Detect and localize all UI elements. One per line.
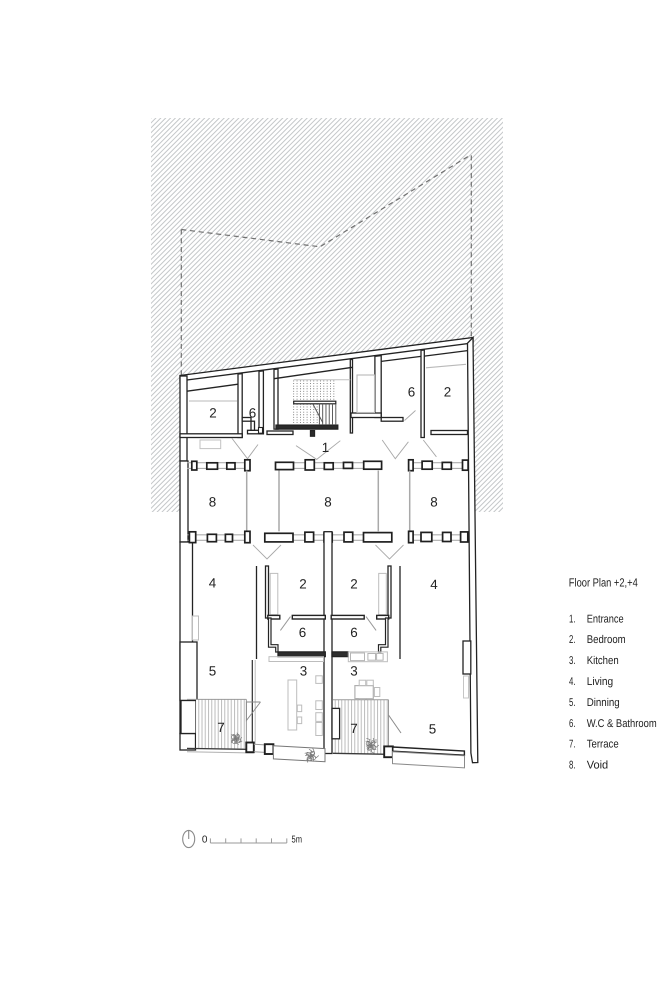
svg-text:2: 2 bbox=[350, 577, 357, 592]
svg-text:3.: 3. bbox=[569, 655, 576, 667]
svg-text:7.: 7. bbox=[569, 739, 576, 751]
svg-text:Bedroom: Bedroom bbox=[587, 634, 626, 646]
svg-text:Floor Plan +2,+4: Floor Plan +2,+4 bbox=[569, 576, 638, 590]
svg-text:5: 5 bbox=[429, 722, 436, 737]
svg-text:Dinning: Dinning bbox=[587, 697, 620, 709]
svg-text:Kitchen: Kitchen bbox=[587, 655, 619, 667]
svg-text:2: 2 bbox=[299, 577, 306, 592]
svg-text:7: 7 bbox=[217, 720, 224, 735]
svg-text:2: 2 bbox=[444, 385, 451, 400]
svg-text:8.: 8. bbox=[569, 760, 576, 772]
svg-text:6: 6 bbox=[299, 625, 306, 640]
svg-text:3: 3 bbox=[350, 664, 357, 679]
svg-text:1: 1 bbox=[322, 440, 329, 455]
svg-text:6: 6 bbox=[408, 385, 415, 400]
svg-text:3: 3 bbox=[300, 664, 307, 679]
svg-text:5m: 5m bbox=[292, 835, 303, 846]
svg-text:6: 6 bbox=[249, 406, 256, 421]
svg-text:Entrance: Entrance bbox=[587, 613, 624, 625]
svg-text:4: 4 bbox=[209, 576, 217, 591]
svg-text:8: 8 bbox=[209, 495, 216, 510]
svg-text:7: 7 bbox=[350, 721, 357, 736]
svg-text:1.: 1. bbox=[569, 613, 576, 625]
svg-text:8: 8 bbox=[324, 495, 331, 510]
svg-text:W.C & Bathroom: W.C & Bathroom bbox=[587, 718, 657, 730]
svg-text:Living: Living bbox=[587, 676, 614, 688]
svg-text:8: 8 bbox=[430, 495, 437, 510]
svg-text:5: 5 bbox=[209, 664, 216, 679]
svg-text:5.: 5. bbox=[569, 697, 576, 709]
svg-text:2.: 2. bbox=[569, 634, 576, 646]
svg-text:4: 4 bbox=[430, 577, 438, 592]
svg-text:6: 6 bbox=[350, 625, 357, 640]
svg-text:Terrace: Terrace bbox=[587, 739, 619, 751]
svg-text:0: 0 bbox=[202, 835, 208, 846]
svg-text:2: 2 bbox=[209, 406, 216, 421]
svg-text:4.: 4. bbox=[569, 676, 576, 688]
svg-text:Void: Void bbox=[587, 760, 609, 772]
svg-text:6.: 6. bbox=[569, 718, 576, 730]
